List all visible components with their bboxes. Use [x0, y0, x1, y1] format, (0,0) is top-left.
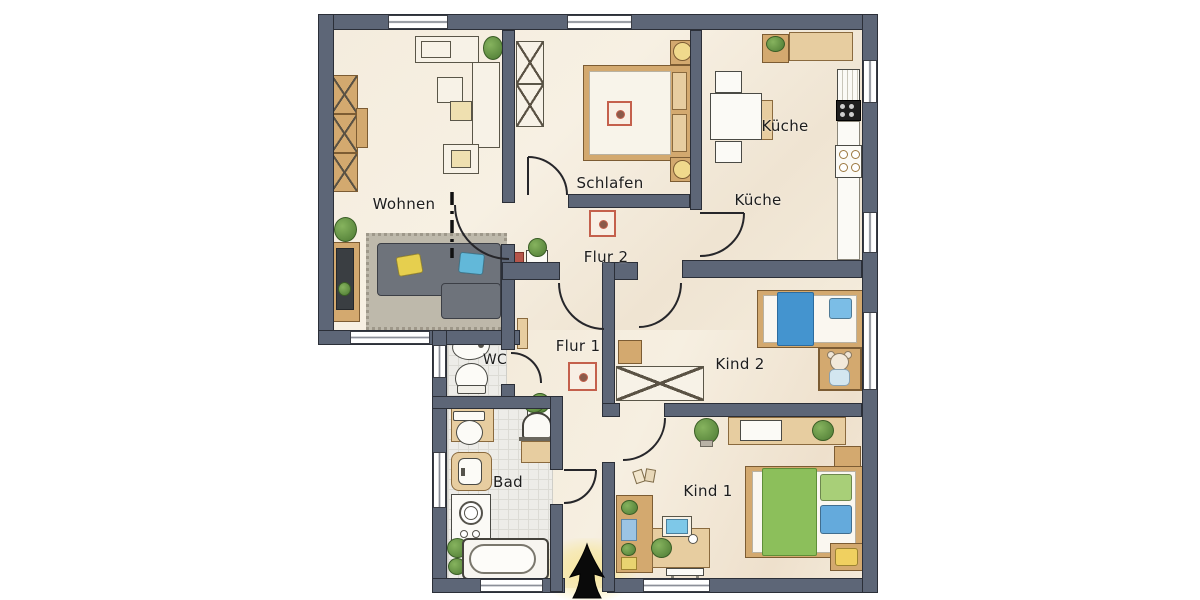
wall-kind-divider: [664, 403, 862, 417]
sofa-chaise: [441, 283, 501, 319]
plant-icon: [766, 36, 785, 52]
side-shelf: [356, 108, 368, 148]
window: [863, 60, 877, 103]
tv-screen: [336, 248, 354, 310]
window: [863, 212, 877, 253]
shelf-unit: [472, 62, 500, 148]
sink-tap: [461, 468, 465, 476]
oven-icon: [836, 100, 861, 121]
washer-knob: [460, 530, 468, 538]
window: [863, 312, 877, 390]
oven-knob: [849, 112, 854, 117]
ornament-rug: [607, 101, 632, 126]
small-stool: [450, 101, 472, 121]
burner: [839, 163, 848, 172]
burner: [839, 150, 848, 159]
room-label-wc: WC: [483, 352, 507, 368]
kitchen-counter-right: [837, 121, 860, 260]
pillow-blue: [829, 298, 852, 319]
shelf-box-blue: [621, 519, 637, 541]
wall-schlafen-bottom: [568, 194, 690, 208]
bench-cushion: [740, 420, 782, 441]
window: [480, 579, 543, 592]
chair-back: [666, 568, 704, 576]
wall-kind-divider-left: [602, 403, 620, 417]
pillow-green: [820, 474, 852, 501]
oven-knob: [840, 104, 845, 109]
room-label-kueche-upper: Küche: [761, 117, 808, 135]
wardrobe-x-icon: [516, 84, 544, 127]
bath-shelf: [521, 441, 552, 463]
room-label-kind1: Kind 1: [683, 482, 732, 500]
teddy-body: [829, 369, 850, 386]
window: [567, 15, 632, 29]
wall-kueche-kind2: [682, 260, 862, 278]
oven-knob: [849, 104, 854, 109]
plant-icon: [338, 282, 351, 296]
plant-icon: [334, 217, 357, 242]
ornament-rug: [568, 362, 597, 391]
burner: [851, 150, 860, 159]
window: [433, 452, 446, 508]
dining-table: [710, 93, 762, 140]
sideboard-detail: [421, 41, 451, 58]
chair: [715, 141, 742, 163]
plant-pot: [700, 440, 713, 447]
floorplan-canvas: Wohnen Schlafen Küche Küche Flur 2 Flur …: [0, 0, 1200, 600]
plant-icon: [483, 36, 503, 60]
bed-pillow-right: [672, 114, 687, 152]
small-table: [437, 77, 463, 103]
room-label-flur2: Flur 2: [584, 248, 629, 266]
wardrobe-x-icon: [331, 75, 358, 114]
wardrobe-x-icon: [331, 114, 358, 153]
room-label-kind2: Kind 2: [715, 355, 764, 373]
wall-kind1-west: [602, 462, 615, 592]
stool-cushion: [835, 548, 858, 566]
pillow-blue: [458, 252, 485, 275]
burner: [851, 163, 860, 172]
chair: [715, 71, 742, 93]
wardrobe-x-icon: [516, 41, 544, 84]
wall-wohnen-schlafen: [502, 30, 515, 203]
wall-wohnen-east: [501, 244, 515, 350]
window: [350, 331, 430, 344]
wall-bad-east-upper: [550, 396, 563, 470]
room-label-schlafen: Schlafen: [576, 174, 643, 192]
plant-icon: [528, 238, 547, 257]
wall-kind2-west: [602, 262, 615, 404]
plant-icon: [812, 420, 834, 441]
wall-schlafen-kueche: [690, 30, 702, 210]
wall-left: [318, 14, 334, 345]
washer-knob: [472, 530, 480, 538]
washer-drum-inner: [464, 506, 478, 520]
chair: [618, 340, 642, 364]
bed-pillow-left: [672, 72, 687, 110]
room-label-wohnen: Wohnen: [373, 195, 436, 213]
shelf-box-yellow: [621, 557, 637, 570]
pillow-yellow: [395, 253, 423, 277]
desk-x-icon: [616, 366, 704, 401]
room-label-flur1: Flur 1: [556, 337, 601, 355]
ornament-rug: [589, 210, 616, 237]
coffee-table-inner: [451, 150, 471, 168]
plant-icon: [621, 500, 638, 515]
bathtub-inner: [469, 544, 536, 574]
wall-wc-bottom: [432, 396, 563, 409]
kitchen-counter-top: [789, 32, 853, 61]
oven-knob: [840, 112, 845, 117]
wall-flur-a: [502, 262, 560, 280]
window: [388, 15, 448, 29]
plant-icon: [621, 543, 636, 556]
fridge-icon: [837, 69, 860, 101]
wall-bad-east-lower: [550, 504, 563, 592]
wc-toilet-seat: [457, 385, 486, 394]
window: [433, 345, 446, 378]
window: [643, 579, 710, 592]
desk-lamp: [688, 534, 698, 544]
room-label-kueche-lower: Küche: [734, 191, 781, 209]
toilet-icon: [456, 420, 483, 445]
towel-dryer-icon: [522, 412, 552, 439]
room-label-bad: Bad: [493, 473, 523, 491]
blanket-blue: [777, 292, 814, 346]
plant-icon: [651, 538, 672, 558]
pillow-blue: [820, 505, 852, 534]
monitor-screen: [666, 519, 688, 534]
wardrobe-x-icon: [331, 153, 358, 192]
blanket-green: [762, 468, 817, 556]
